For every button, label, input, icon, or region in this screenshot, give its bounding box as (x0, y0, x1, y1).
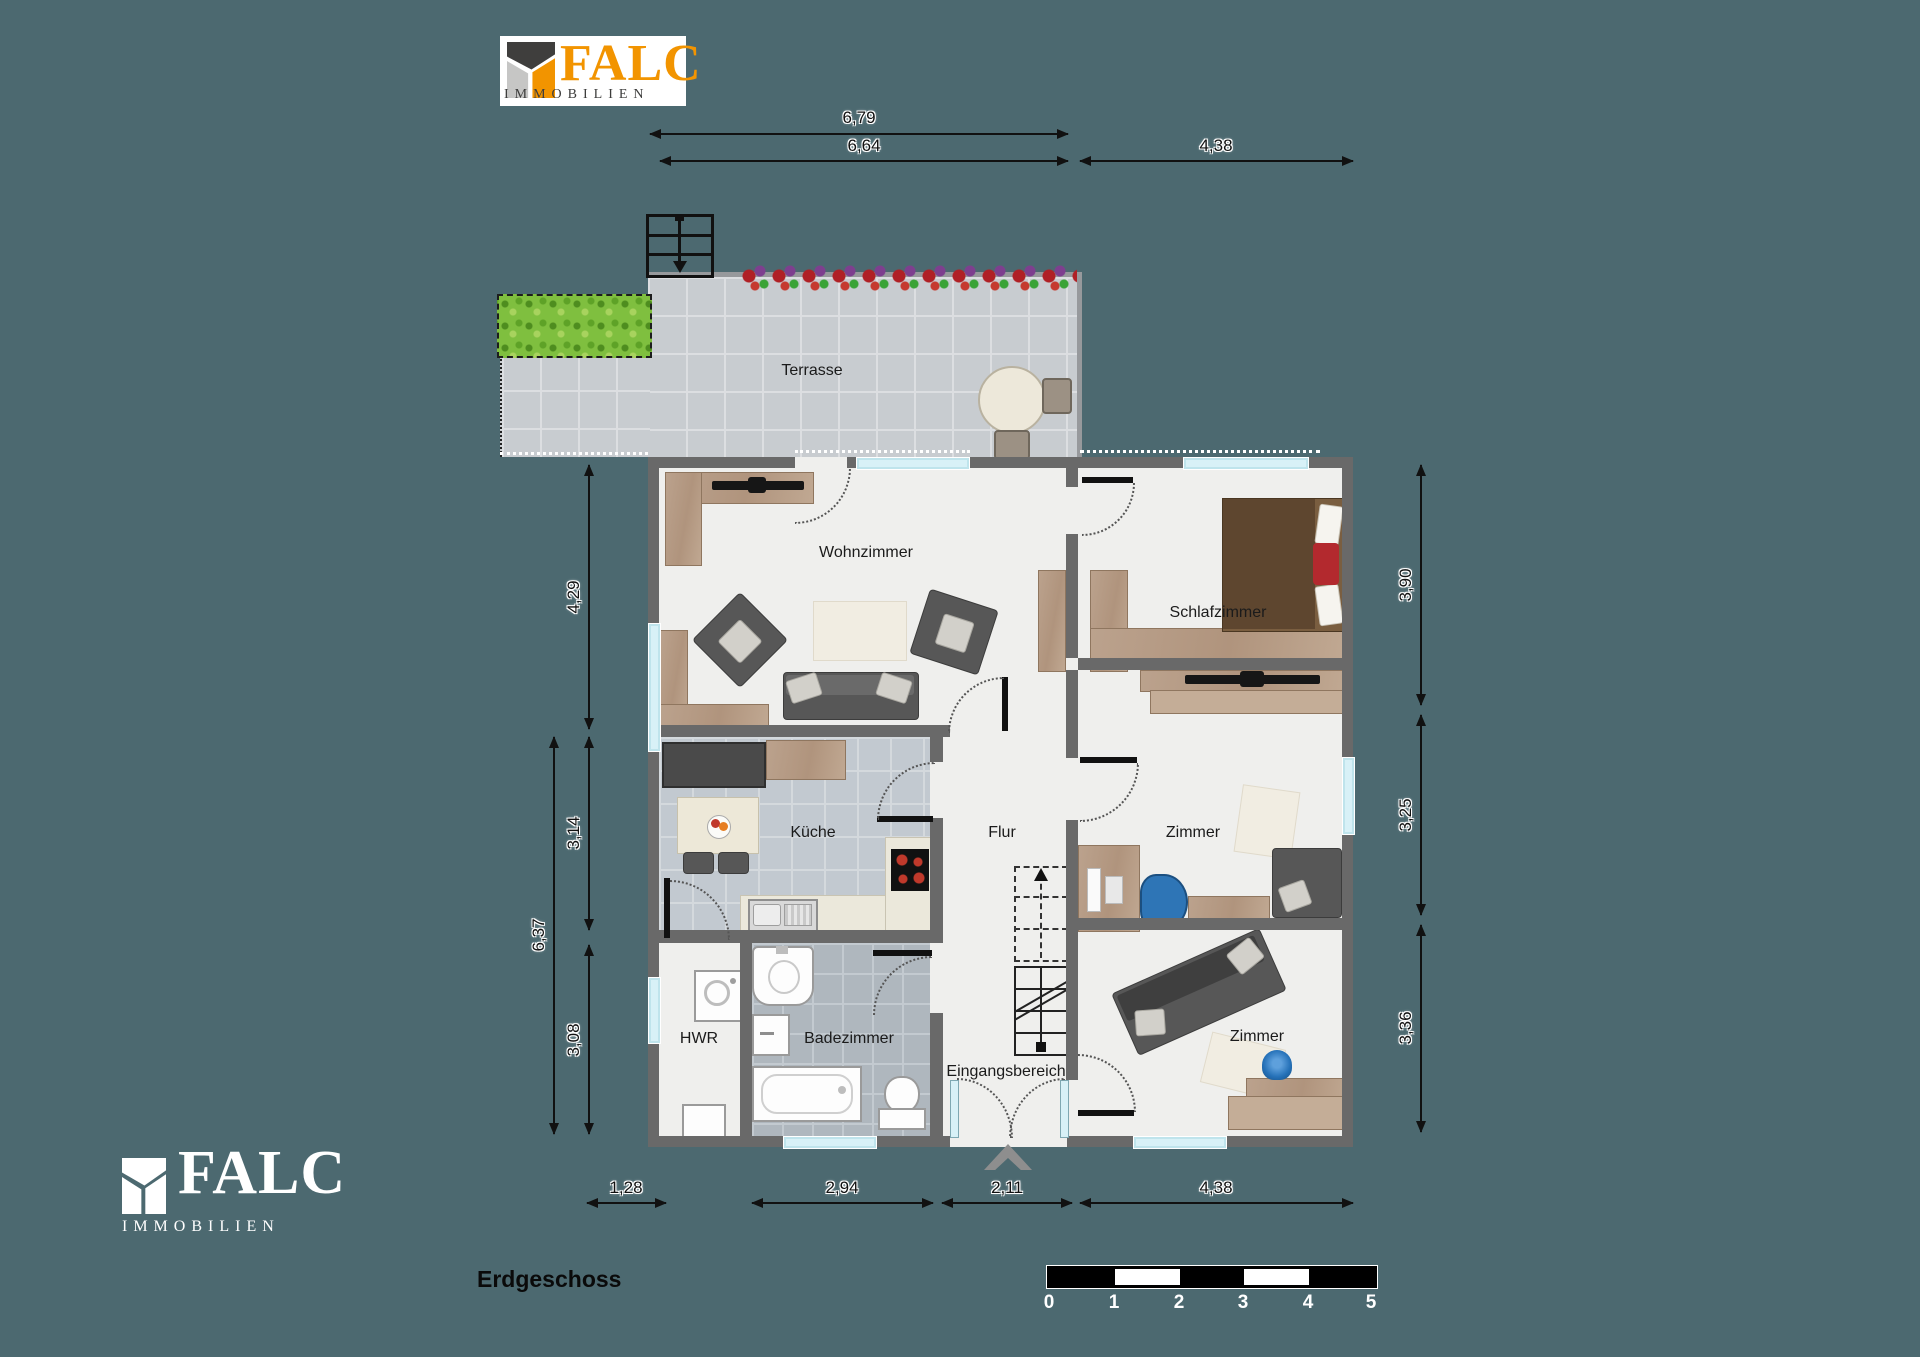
scale-label: 5 (1366, 1292, 1377, 1314)
dimension-line (588, 945, 590, 1134)
kitchen-sink (748, 899, 818, 933)
dimension-label: 2,11 (991, 1178, 1023, 1198)
dimension-label: 4,29 (564, 580, 584, 613)
wall (1066, 534, 1078, 658)
dimension-line (1420, 715, 1422, 915)
bath-sink (752, 946, 814, 1006)
dimension-label: 2,94 (825, 1178, 858, 1198)
falc-logo-icon (122, 1158, 166, 1214)
terrace-chair (1042, 378, 1072, 414)
dimension-label: 6,37 (529, 918, 549, 951)
dimension-label: 3,90 (1396, 568, 1416, 601)
window (648, 977, 661, 1044)
dimension-label: 6,64 (847, 136, 880, 156)
scale-bar (1047, 1266, 1377, 1288)
roof-overhang-dashed (795, 450, 970, 453)
rug (813, 601, 907, 661)
room-label-hwr: HWR (680, 1030, 718, 1048)
dimension-line (1080, 1202, 1353, 1204)
falc-logo-top: FALC IMMOBILIEN (500, 36, 686, 106)
vase (1262, 1050, 1292, 1080)
dimension-label: 4,38 (1199, 136, 1232, 156)
window (648, 623, 661, 752)
wall (930, 737, 943, 762)
door-leaf (873, 950, 932, 956)
wall (930, 1013, 943, 1136)
bath-cabinet (752, 1014, 790, 1056)
window (783, 1136, 877, 1149)
kitchen-table (677, 797, 759, 854)
cabinet-box (682, 1104, 726, 1140)
wall (740, 943, 752, 1136)
dimension-line (752, 1202, 933, 1204)
dimension-label: 3,25 (1396, 798, 1416, 831)
scale-label: 3 (1238, 1292, 1249, 1314)
window (1133, 1136, 1227, 1149)
wall (1066, 670, 1078, 758)
logo-subtitle-text: IMMOBILIEN (504, 87, 650, 103)
washing-machine (694, 970, 744, 1022)
room-label-kueche: Küche (790, 824, 835, 842)
sideboard (1188, 896, 1270, 920)
dimension-label: 4,38 (1199, 1178, 1232, 1198)
chair (683, 852, 714, 874)
stove-cooktop (891, 849, 929, 891)
terrace-chair (994, 430, 1030, 460)
logo-brand-text: FALC (560, 34, 702, 93)
terrace-door-opening (795, 457, 847, 468)
room-label-zimmer-unten: Zimmer (1230, 1028, 1284, 1046)
tv-flatscreen-base (1240, 671, 1264, 687)
couch (1272, 848, 1342, 918)
wall (1066, 930, 1078, 1080)
scale-label: 1 (1109, 1292, 1120, 1314)
terrace-paving-left (500, 352, 650, 457)
dimension-label: 6,79 (842, 108, 875, 128)
falc-logo-bottom: FALC IMMOBILIEN (100, 1150, 400, 1260)
dimension-line (588, 737, 590, 930)
wardrobe (1090, 628, 1344, 660)
logo-subtitle-text: IMMOBILIEN (122, 1218, 280, 1236)
room-label-schlafzimmer: Schlafzimmer (1170, 604, 1267, 622)
terrace-dashed-edge (500, 452, 648, 455)
terrace-table (978, 366, 1046, 434)
dimension-line (660, 160, 1068, 162)
dimension-line (1420, 465, 1422, 705)
room-label-terrasse: Terrasse (781, 362, 842, 380)
dimension-label: 3,08 (564, 1023, 584, 1056)
logo-brand-text: FALC (178, 1138, 346, 1209)
room-label-flur: Flur (988, 824, 1016, 842)
toilet-tank (878, 1108, 926, 1130)
dimension-line (588, 465, 590, 729)
roof-overhang-dashed (1080, 450, 1320, 453)
scale-label: 4 (1303, 1292, 1314, 1314)
dimension-line (942, 1202, 1072, 1204)
kitchen-cabinet (766, 740, 846, 780)
floorplan-page: FALC IMMOBILIEN Terrasse Wohnzimmer (0, 0, 1920, 1357)
dimension-label: 1,28 (609, 1178, 642, 1198)
room-label-zimmer-mitte: Zimmer (1166, 824, 1220, 842)
entrance-marker-inner (993, 1158, 1023, 1172)
cabinet (1038, 570, 1066, 672)
dimension-label: 3,14 (564, 816, 584, 849)
kitchen-counter-dark (662, 742, 766, 788)
chair (718, 852, 749, 874)
wall (1066, 820, 1078, 930)
dimension-line (1420, 925, 1422, 1132)
dimension-label: 3,36 (1396, 1011, 1416, 1044)
room-label-wohnzimmer: Wohnzimmer (819, 544, 913, 562)
flower-border (742, 264, 1077, 294)
desk (1228, 1096, 1344, 1130)
bathtub (752, 1066, 862, 1122)
staircase (1014, 866, 1068, 1056)
sideboard (665, 472, 702, 566)
floor-title: Erdgeschoss (477, 1266, 621, 1293)
hedge (497, 294, 652, 358)
wall (1078, 658, 1353, 670)
window (1183, 457, 1309, 470)
wall (1078, 918, 1353, 930)
scale-label: 2 (1174, 1292, 1185, 1314)
wall (659, 725, 950, 737)
dimension-line (1080, 160, 1353, 162)
dimension-line (553, 737, 555, 1134)
wall (930, 818, 943, 930)
tv-flatscreen-base (748, 477, 766, 493)
dimension-line (587, 1202, 666, 1204)
scale-label: 0 (1044, 1292, 1055, 1314)
tv-sideboard (1150, 690, 1344, 714)
window (856, 457, 970, 470)
dimension-line (650, 133, 1068, 135)
room-label-badezimmer: Badezimmer (804, 1030, 894, 1048)
window (1342, 757, 1355, 835)
exterior-stairs (646, 214, 714, 278)
